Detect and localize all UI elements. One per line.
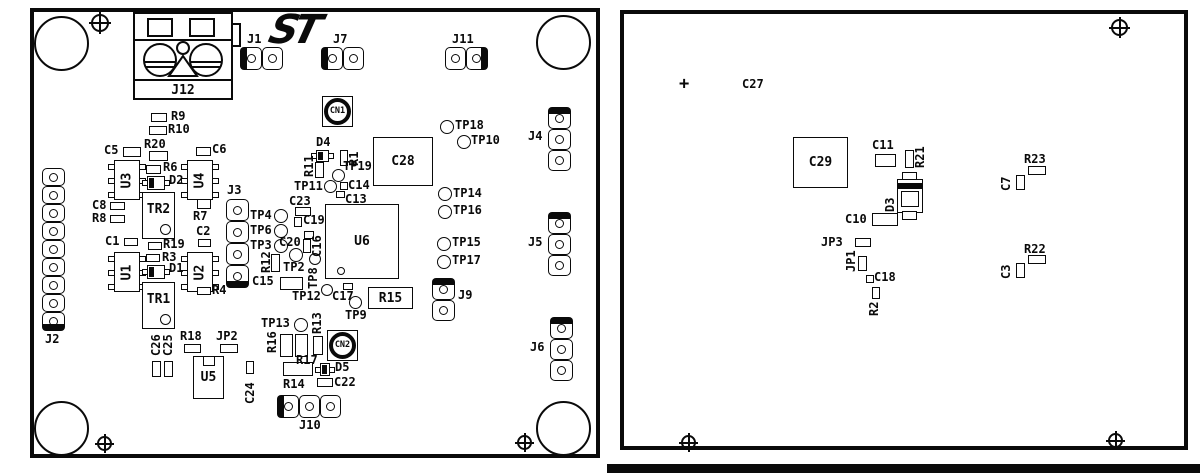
u4-chip: U4 [187,160,213,200]
r11-label: R11 [303,155,315,177]
u6-chip-label: U6 [354,235,370,248]
u1-chip: U1 [114,252,140,292]
c15-label: C15 [252,275,274,287]
c26-footprint [152,361,161,377]
tp18-label: TP18 [455,119,484,131]
j6-header-pin1-mark [550,317,573,324]
c18-label: C18 [874,271,896,283]
r15-resistor-label: R15 [379,292,402,305]
j1-header-pin2 [262,47,283,70]
c29-capacitor-label: C29 [809,156,832,169]
r18-label: R18 [180,330,202,342]
c22-label: C22 [334,376,356,388]
c22-footprint [317,378,333,387]
j5-header [548,213,571,276]
r22-label: R22 [1024,243,1046,255]
tp17-label: TP17 [452,254,481,266]
j3-label: J3 [227,184,241,196]
tp15-label: TP15 [452,236,481,248]
r3-footprint [146,254,160,262]
r15-resistor: R15 [368,287,413,309]
d3-label: D3 [884,198,896,212]
c5-footprint [123,147,141,157]
mount-hole-top-right [536,15,591,70]
j2-header-pin8 [42,294,65,312]
r17-label: R17 [296,354,318,366]
r16-label: R16 [266,331,278,353]
j2-header [42,168,65,330]
c10-label: C10 [845,213,867,225]
r7-label: R7 [193,210,207,222]
c1-label: C1 [105,235,119,247]
c13-footprint [336,191,345,198]
pcb-silkscreen-assembly-drawing: J12STCN1CN2U3U4U1U2TR2TR1U5U6C28R15C29J1… [0,0,1200,473]
mount-hole-bottom-left [34,401,89,456]
r16-footprint [280,334,293,357]
c10-footprint [872,213,898,226]
j9-header-pin2 [432,300,455,321]
j2-header-pin4 [42,222,65,240]
tp4-label: TP4 [250,209,272,221]
c25-label: C25 [162,334,174,356]
jp2-label: JP2 [216,330,238,342]
st-logo-label: ST [265,10,321,50]
tp10-testpoint [457,135,471,149]
d4-label: D4 [316,136,330,148]
j5-label: J5 [528,236,542,248]
r9-footprint [151,113,167,122]
tp11-label: TP11 [294,180,323,192]
jp3-label: JP3 [821,236,843,248]
j4-header-pin2 [548,129,571,150]
r11-footprint [315,162,324,178]
j7-header-pin2 [343,47,364,70]
c14-label: C14 [348,179,370,191]
c28-capacitor: C28 [373,137,433,186]
c5-label: C5 [104,144,118,156]
u2-chip-label: U2 [194,264,207,280]
jp1-footprint [858,256,867,271]
c2-label: C2 [196,225,210,237]
d2-diode [143,176,169,190]
j2-label: J2 [45,333,59,345]
mount-hole-top-left [34,16,89,71]
c25-footprint [164,361,173,377]
r7-footprint [197,199,211,209]
r4-label: R4 [212,284,226,296]
j6-label: J6 [530,341,544,353]
fiducial-right-board-bl-icon [679,433,698,452]
r8-label: R8 [92,212,106,224]
tp14-label: TP14 [453,187,482,199]
j2-header-pin6 [42,258,65,276]
panel-edge-bar [607,464,1200,473]
c1-footprint [124,238,138,246]
tp16-testpoint [438,205,452,219]
tr2-transistor: TR2 [142,192,175,239]
r21-label: R21 [914,146,926,168]
j2-header-pin3 [42,204,65,222]
r23-label: R23 [1024,153,1046,165]
j6-header-pin3 [550,360,573,381]
left-board-outline [30,8,600,458]
tr1-transistor-label: TR1 [147,293,170,306]
d3-diode [897,172,923,220]
u2-chip: U2 [187,252,213,292]
r10-footprint [149,126,167,135]
j9-header [432,279,455,321]
cn1-connector-label: CN1 [330,107,345,116]
j5-header-pin2 [548,234,571,255]
u3-chip-label: U3 [121,172,134,188]
u6-chip: U6 [325,204,399,279]
d1-label: D1 [169,262,183,274]
tp6-label: TP6 [250,224,272,236]
c28-capacitor-label: C28 [391,155,414,168]
tr1-transistor: TR1 [142,282,175,329]
tp15-testpoint [437,237,451,251]
j3-header-pin1 [226,199,249,221]
j7-header-pin1-mark [321,47,328,70]
plus-mark: + [679,76,689,93]
j3-header [226,199,249,287]
right-board-outline [620,10,1188,450]
c6-label: C6 [212,143,226,155]
tp3-label: TP3 [250,239,272,251]
r19-footprint [148,242,162,250]
r1-label: R1 [348,152,360,166]
r12-label: R12 [260,251,272,273]
u5-chip-label: U5 [201,371,217,384]
j11-header [445,47,487,70]
cn1-connector: CN1 [322,96,353,127]
r14-label: R14 [283,378,305,390]
fiducial-top-left-icon [89,12,111,34]
tr2-transistor-label: TR2 [147,203,170,216]
tp8-label: TP8 [307,267,319,289]
j4-header-pin3 [548,150,571,171]
tp16-label: TP16 [453,204,482,216]
r6-label: R6 [163,161,177,173]
u3-chip: U3 [114,160,140,200]
d2-label: D2 [169,174,183,186]
j2-header-pin5 [42,240,65,258]
r10-label: R10 [168,123,190,135]
r4-footprint [197,287,211,295]
j3-header-pin1-mark [226,281,249,288]
j10-header-pin2 [299,395,320,418]
c19-footprint [294,217,302,227]
c17-label: C17 [332,290,354,302]
c8-footprint [110,202,125,210]
tp18-testpoint [440,120,454,134]
c11-label: C11 [872,139,894,151]
c27-label: C27 [742,78,764,90]
j2-header-pin7 [42,276,65,294]
c24-footprint [246,361,254,374]
c8-label: C8 [92,199,106,211]
j1-header-pin1-mark [240,47,247,70]
c3-label: C3 [1000,265,1012,279]
tp9-label: TP9 [345,309,367,321]
r2-footprint [872,287,880,299]
j5-header-pin3 [548,255,571,276]
c14-footprint [340,182,348,190]
fiducial-right-board-top-icon [1109,17,1130,38]
cn2-connector: CN2 [327,330,358,361]
j6-header [550,318,573,381]
r22-footprint [1028,255,1046,264]
j2-header-pin2 [42,186,65,204]
c11-footprint [875,154,896,167]
jp1-label: JP1 [845,250,857,272]
c6-footprint [196,147,211,156]
fiducial-bottom-right-icon [515,433,534,452]
c20-label: C20 [279,236,301,248]
r19-label: R19 [163,238,185,250]
r9-label: R9 [171,110,185,122]
j11-header-pin1-mark [481,47,488,70]
tp2-label: TP2 [283,261,305,273]
j5-header-pin1-mark [548,212,571,219]
tp10-label: TP10 [471,134,500,146]
c23-label: C23 [289,195,311,207]
c29-capacitor: C29 [793,137,848,188]
tp4-testpoint [274,209,288,223]
j2-header-pin1-mark [42,324,65,331]
c13-label: C13 [345,193,367,205]
c24-label: C24 [244,382,256,404]
j9-label: J9 [458,289,472,301]
c18-footprint [866,275,874,283]
tp13-testpoint [294,318,308,332]
u5-chip: U5 [193,356,224,399]
j12-terminal-block-label: J12 [171,84,194,97]
j4-header [548,108,571,171]
fiducial-right-board-br-icon [1106,431,1125,450]
j3-header-pin2 [226,221,249,243]
tp13-label: TP13 [261,317,290,329]
c16-label: C16 [311,235,323,257]
r6-footprint [146,165,161,174]
d1-diode [143,265,169,279]
j6-header-pin2 [550,339,573,360]
tp14-testpoint [438,187,452,201]
d5-label: D5 [335,361,349,373]
c19-label: C19 [303,214,325,226]
j1-header [241,47,283,70]
j1-label: J1 [247,33,261,45]
j4-label: J4 [528,130,542,142]
jp3-footprint [855,238,871,247]
r23-footprint [1028,166,1046,175]
mount-hole-bottom-right [536,401,591,456]
c7-footprint [1016,175,1025,190]
tp12-label: TP12 [292,290,321,302]
j10-label: J10 [299,419,321,431]
fiducial-bottom-left-icon [95,434,114,453]
j12-terminal-block: J12 [133,12,233,100]
c7-label: C7 [1000,177,1012,191]
u1-chip-label: U1 [121,264,134,280]
j7-header [322,47,364,70]
j7-label: J7 [333,33,347,45]
r2-label: R2 [868,302,880,316]
j2-header-pin1 [42,168,65,186]
j4-header-pin1-mark [548,107,571,114]
r8-footprint [110,215,125,223]
j10-header-pin3 [320,395,341,418]
j9-header-pin1-mark [432,278,455,285]
r18-footprint [184,344,201,353]
j3-header-pin3 [226,243,249,265]
c2-footprint [198,239,211,247]
j10-header-pin1-mark [277,395,284,418]
c3-footprint [1016,263,1025,278]
cn2-connector-label: CN2 [335,341,350,350]
r20-label: R20 [144,138,166,150]
tp17-testpoint [437,255,451,269]
j11-header-pin1 [445,47,466,70]
r13-label: R13 [311,312,323,334]
u4-chip-label: U4 [194,172,207,188]
jp2-footprint [220,344,238,353]
d5-diode [316,363,334,376]
j11-label: J11 [452,33,474,45]
j10-header [278,395,341,418]
